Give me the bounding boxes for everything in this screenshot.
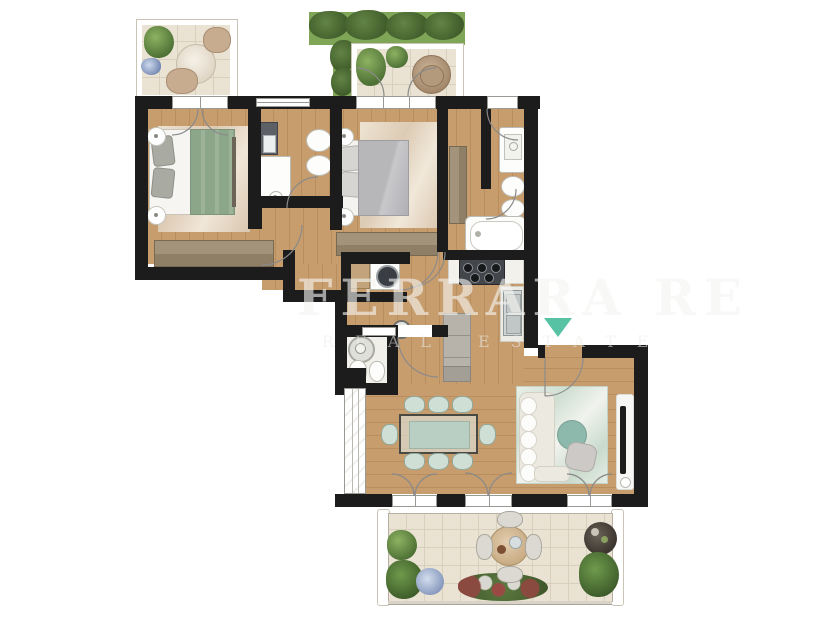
window-bath1 <box>256 98 310 107</box>
toilet-icon <box>501 176 525 197</box>
potted-plant-icon <box>386 46 408 68</box>
wall <box>342 252 410 264</box>
wall <box>135 96 148 280</box>
bowl-plant-icon <box>584 522 617 555</box>
wall <box>437 109 448 252</box>
outdoor-chair-icon <box>476 534 493 560</box>
bed-footboard <box>232 137 236 207</box>
nightstand-icon <box>147 127 166 146</box>
french-door-bedroom2 <box>356 96 436 109</box>
outdoor-table-icon <box>489 526 529 566</box>
sofa-pillow <box>520 397 537 415</box>
bidet-icon <box>306 155 332 176</box>
bedroom1-wardrobe <box>154 240 274 267</box>
chair-icon <box>166 68 198 94</box>
potted-plant-icon <box>356 48 386 86</box>
living-window-wall <box>344 388 366 494</box>
dining-chair <box>381 424 398 445</box>
dining-chair <box>404 453 425 470</box>
sofa-chaise <box>534 466 570 482</box>
bedroom2-duvet <box>358 140 409 216</box>
watermark-title: FERRARA RE <box>297 268 750 327</box>
kitchen-cabinet-end <box>443 366 471 382</box>
outdoor-chair-icon <box>497 566 523 583</box>
wall <box>481 109 491 189</box>
chair-icon <box>203 27 231 53</box>
wall <box>437 494 465 507</box>
bathroom2-sink <box>499 127 525 173</box>
dining-chair <box>404 396 425 413</box>
bathtub <box>465 216 526 254</box>
outdoor-chair-icon <box>525 534 542 560</box>
bed-pillow <box>150 167 175 199</box>
flower-pot-icon <box>141 58 161 75</box>
hall-closet <box>449 146 467 224</box>
wall <box>344 368 366 388</box>
dining-chair <box>452 453 473 470</box>
dining-chair <box>479 424 496 445</box>
apartment-floor-plan: FERRARA RE REAL ESTATE <box>0 0 840 630</box>
wall <box>248 196 262 229</box>
nightstand-icon <box>147 206 166 225</box>
door-hall-top <box>487 96 518 109</box>
french-door-living <box>567 495 612 507</box>
outdoor-chair-icon <box>497 511 523 528</box>
flower-pot-icon <box>416 568 444 595</box>
hanging-chair-icon <box>412 55 451 94</box>
potted-plant-icon <box>387 530 417 560</box>
wall <box>330 109 342 230</box>
wall <box>634 345 648 507</box>
french-door-living <box>465 495 512 507</box>
wall <box>512 494 567 507</box>
balcony-railing <box>388 601 612 605</box>
bedroom1-blanket <box>190 129 235 215</box>
wall <box>248 196 343 208</box>
french-door-living <box>392 495 437 507</box>
potted-plant-icon <box>144 26 174 58</box>
wall <box>443 250 538 260</box>
wall <box>335 494 392 507</box>
wall <box>612 494 648 507</box>
wall <box>248 109 261 200</box>
dining-chair <box>428 396 449 413</box>
toilet-icon <box>306 129 332 152</box>
bidet-icon <box>369 361 385 382</box>
dining-table <box>399 414 478 454</box>
bathroom1-sink <box>259 122 278 155</box>
speaker-icon <box>620 477 631 488</box>
french-door-bedroom1 <box>172 96 228 109</box>
sofa-pillow <box>520 414 537 432</box>
dining-chair <box>452 396 473 413</box>
tv-icon <box>620 406 626 474</box>
wall <box>135 267 295 280</box>
potted-plant-icon <box>579 552 619 597</box>
sofa-pillow <box>520 431 537 449</box>
watermark-subtitle: REAL ESTATE <box>322 332 669 351</box>
dining-chair <box>428 453 449 470</box>
